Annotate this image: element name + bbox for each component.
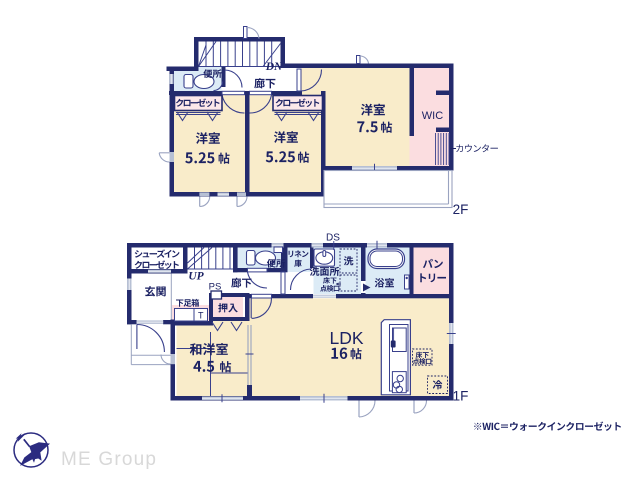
svg-text:ME Group: ME Group <box>61 449 157 470</box>
svg-text:UP: UP <box>188 271 204 283</box>
svg-text:T: T <box>198 311 204 321</box>
svg-text:1F: 1F <box>453 389 469 404</box>
svg-text:DN: DN <box>265 61 283 73</box>
svg-text:PS: PS <box>209 282 222 293</box>
svg-text:WIC: WIC <box>422 110 443 122</box>
svg-text:LDK: LDK <box>329 328 363 348</box>
svg-text:2F: 2F <box>453 202 469 217</box>
svg-text:DS: DS <box>326 233 340 244</box>
